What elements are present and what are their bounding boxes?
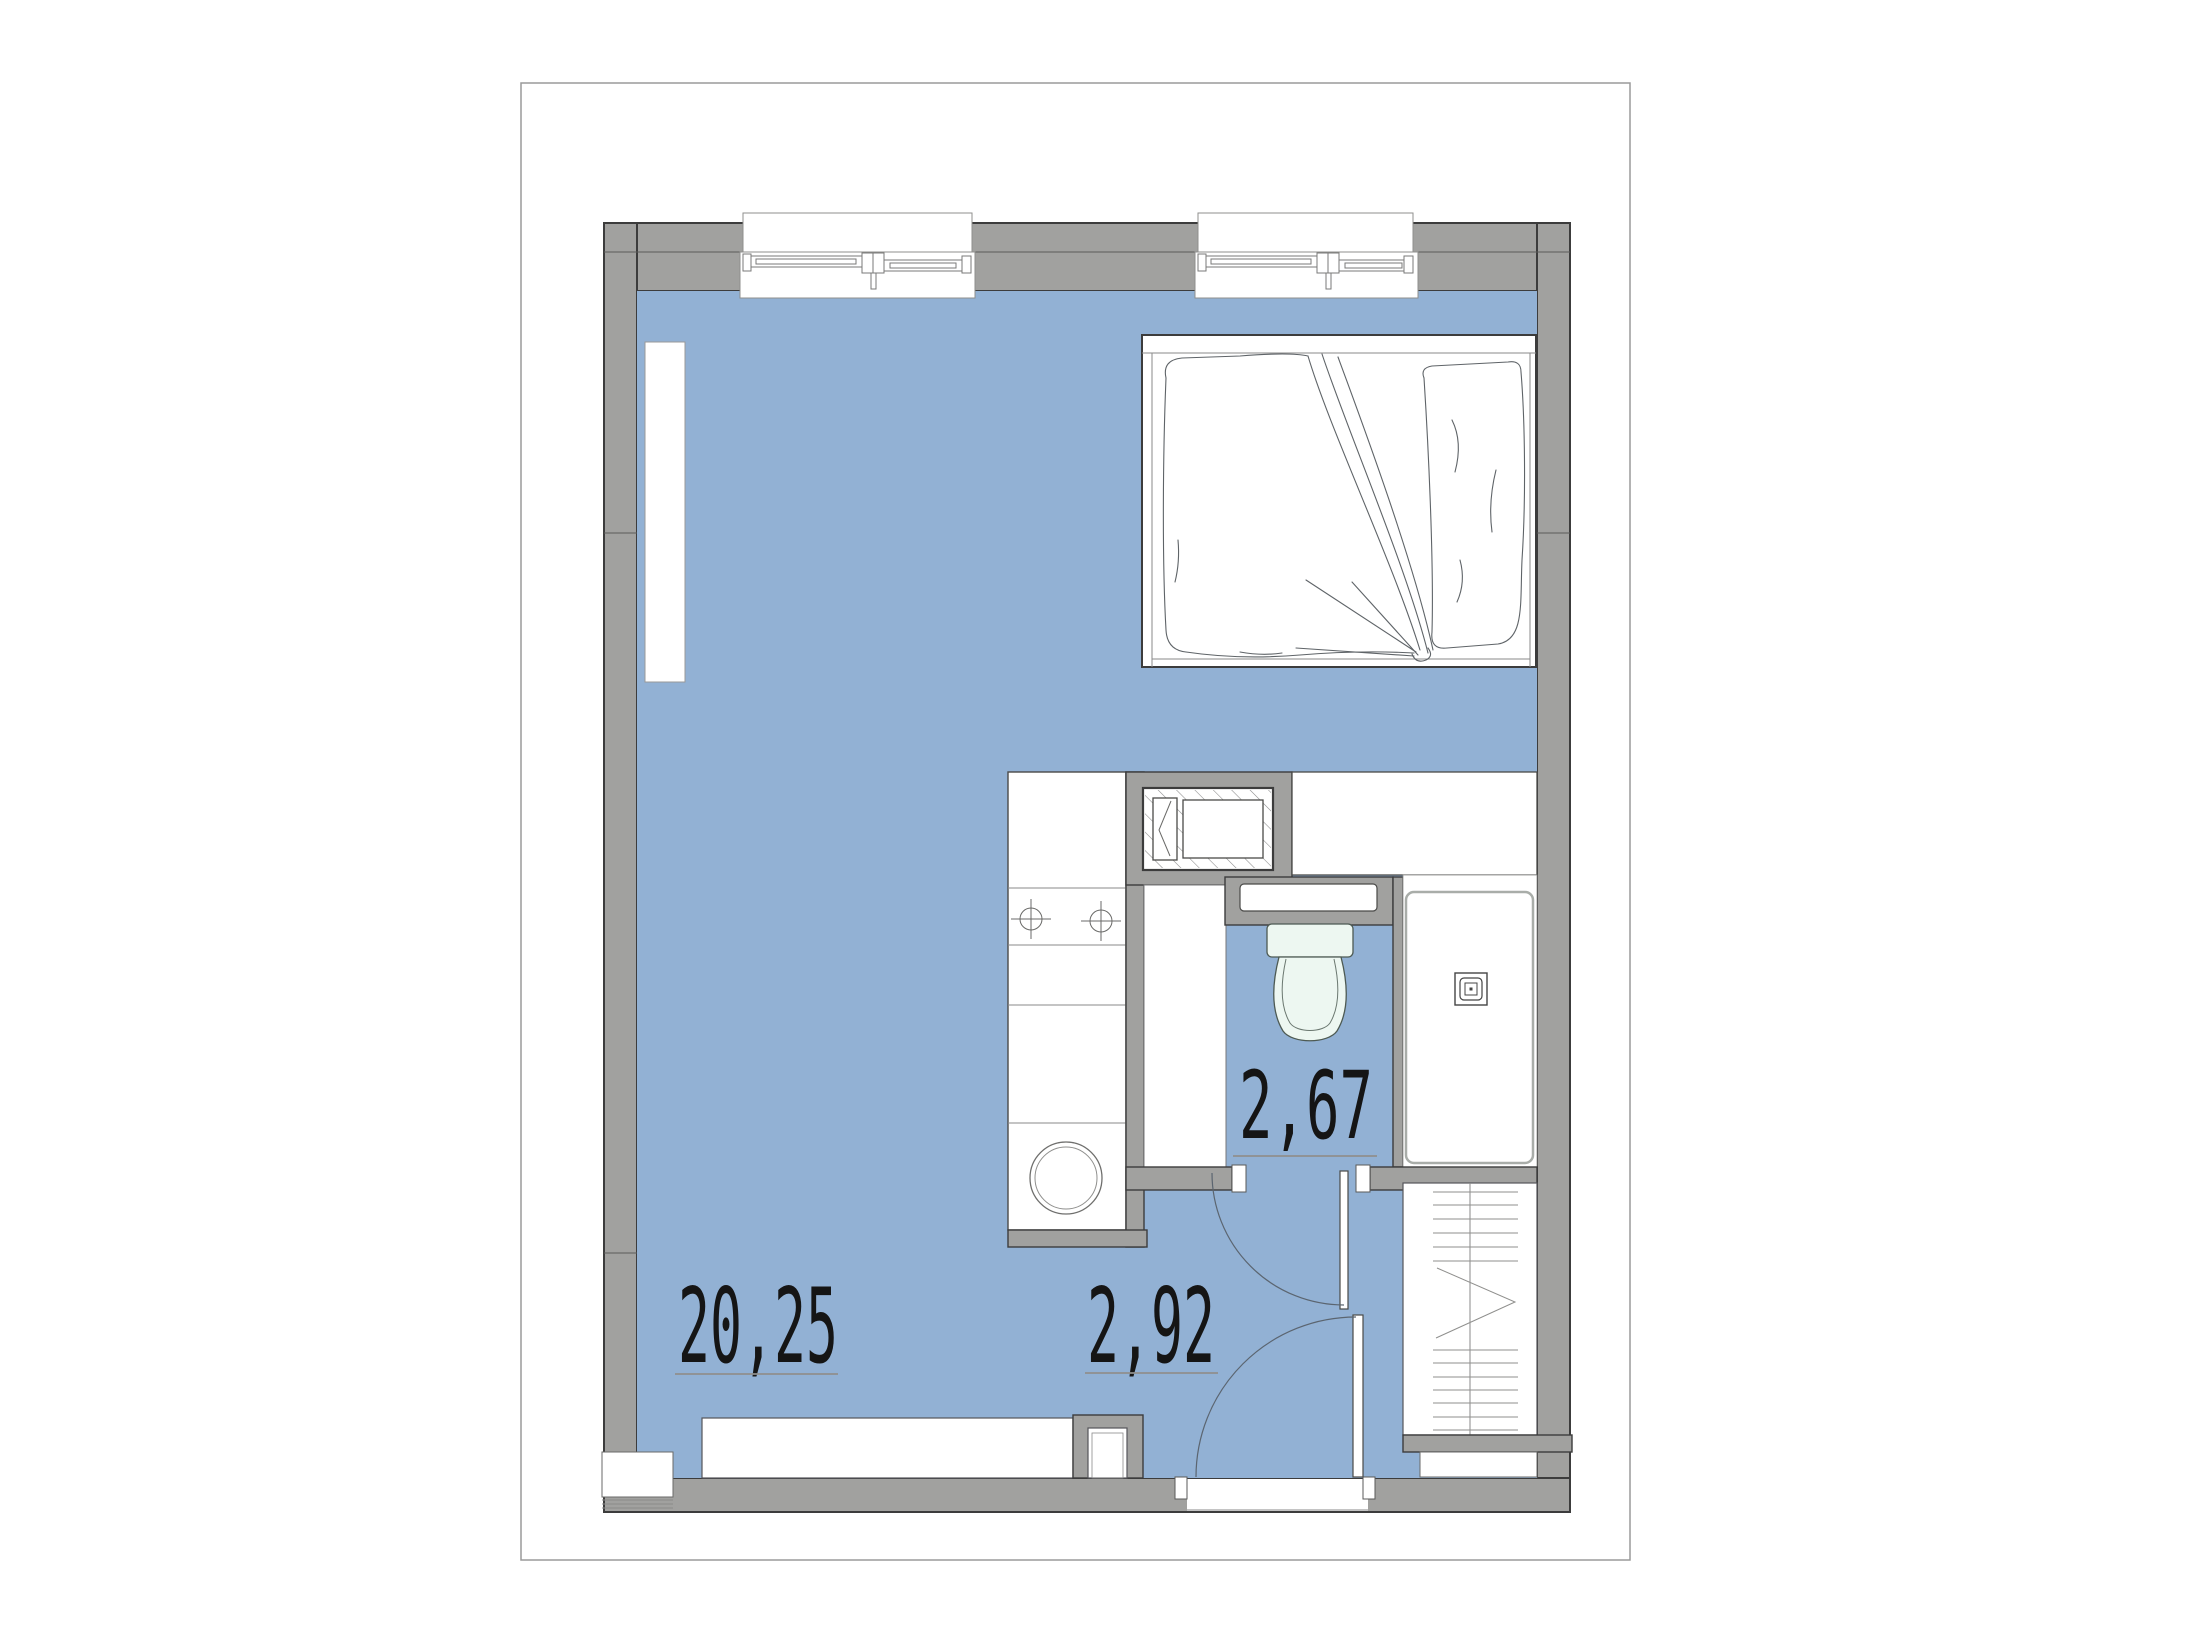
toilet-bowl	[1274, 957, 1346, 1041]
sideboard	[702, 1418, 1073, 1478]
window-handle-icon	[1326, 273, 1331, 289]
wall-bottom	[604, 1478, 1570, 1512]
floor-plan-page: 20,25 2,92 2,67	[0, 0, 2200, 1650]
entrance-door-leaf	[1353, 1315, 1363, 1477]
bathroom-door-leaf	[1340, 1171, 1348, 1309]
shower-tray	[1406, 892, 1533, 1163]
bathroom-area-label: 2,67	[1239, 1052, 1373, 1161]
hallway-area-label: 2,92	[1087, 1267, 1215, 1387]
window-1	[740, 213, 975, 298]
floor-plan-drawing: 20,25 2,92 2,67	[0, 0, 2200, 1650]
bathroom-sink	[1225, 877, 1393, 925]
wardrobe-base-niche	[1420, 1452, 1537, 1477]
appliance	[1183, 800, 1263, 858]
radiator-bottom	[602, 1452, 673, 1508]
toilet-tank	[1267, 924, 1353, 957]
appliance-niche	[1143, 788, 1273, 870]
bathroom-left-counter	[1144, 885, 1226, 1167]
living-room-area-label: 20,25	[678, 1267, 838, 1387]
upper-duct-area	[1292, 772, 1537, 875]
radiator-left	[645, 342, 685, 682]
shower	[1403, 875, 1537, 1167]
wall-left	[604, 223, 637, 1512]
window-2	[1195, 213, 1418, 298]
kitchen-counter	[1008, 772, 1126, 1230]
toilet	[1267, 924, 1353, 1041]
shower-partition	[1393, 877, 1403, 1167]
kitchen-end-wall	[1008, 1230, 1147, 1247]
shower-drain-icon	[1455, 973, 1487, 1005]
bed	[1142, 335, 1536, 667]
wall-right	[1537, 223, 1570, 1512]
window-handle-icon	[871, 273, 876, 289]
duct-shaft	[1073, 1415, 1143, 1478]
